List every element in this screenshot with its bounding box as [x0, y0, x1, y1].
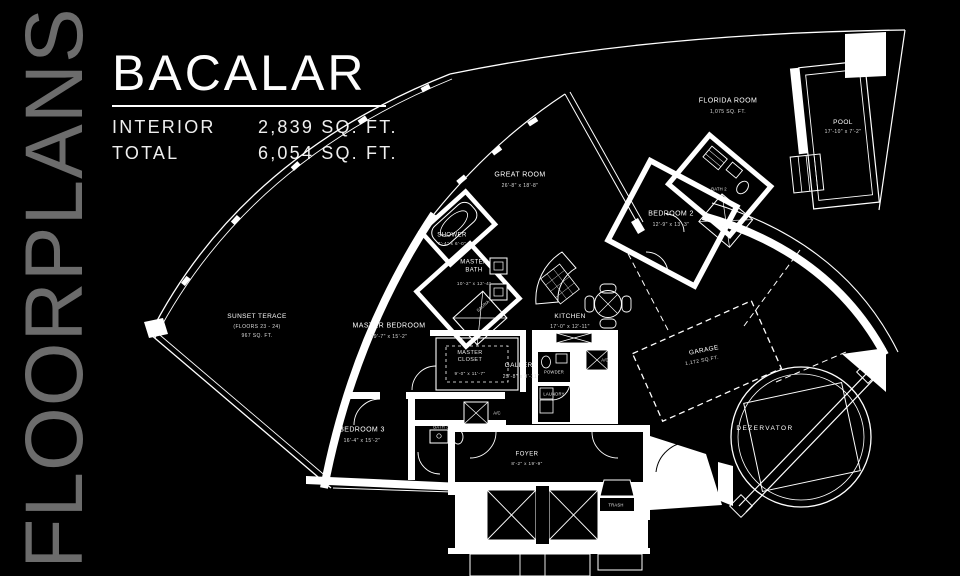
- great-room-glass: [434, 92, 645, 234]
- room-dims-master-bedroom: 19'-7" x 15'-2": [371, 334, 408, 340]
- room-dims-gallery: 25'-8" x 9'-11": [503, 374, 539, 380]
- terrace-outline: [144, 30, 905, 492]
- room-label-foyer: FOYER: [516, 451, 539, 459]
- dining-table: [585, 284, 631, 328]
- room-area-sunset-terrace: 967 SQ. FT.: [241, 333, 272, 339]
- room-label-sunset-terrace: SUNSET TERACE: [227, 313, 287, 321]
- wall-block-top-right: [845, 32, 886, 78]
- room-dims-pool: 17'-10" x 7'-2": [825, 129, 862, 135]
- room-dims-kitchen: 17'-0" x 12'-11": [550, 324, 590, 330]
- room-floors-sunset-terrace: (FLOORS 23 - 24): [233, 324, 280, 330]
- room-label-pool: POOL: [833, 119, 853, 127]
- room-label-master-bedroom: MASTER BEDROOM: [353, 323, 426, 332]
- room-dims-bedroom-3: 16'-4" x 15'-2": [344, 438, 381, 444]
- room-dims-shower: 7'-4" x 6'-0": [438, 241, 466, 247]
- room-label-bedroom-3: BEDROOM 3: [339, 427, 385, 436]
- room-dims-master-closet: 9'-0" x 11'-7": [455, 371, 486, 377]
- floorplan-drawing: [0, 0, 960, 576]
- room-dims-great-room: 26'-8" x 18'-8": [502, 183, 539, 189]
- floorplan-page: FLOORPLANS BACALAR INTERIOR 2,839 SQ. FT…: [0, 0, 960, 576]
- room-label-master-closet: MASTER CLOSET: [451, 350, 489, 364]
- room-label-ac-2: A/C: [493, 410, 501, 415]
- powder-room: [538, 352, 570, 382]
- trash-chute: [600, 480, 634, 496]
- elevator-core: [448, 425, 722, 576]
- room-dims-foyer: 8'-2" x 19'-9": [511, 461, 542, 467]
- room-dims-bedroom-2: 12'-9" x 13'-3": [653, 222, 690, 228]
- room-label-ac-1: A/C: [601, 357, 609, 362]
- room-label-bath-3: BATH 3: [433, 424, 449, 429]
- service-band: [532, 330, 618, 424]
- terrace-interior-wall: [324, 214, 434, 488]
- room-label-laundry: LAUNDRY: [543, 391, 564, 396]
- room-label-bath-2: BATH 2: [711, 186, 727, 191]
- room-label-master-bath: MASTER BATH: [455, 260, 493, 275]
- right-curved-wall: [703, 203, 898, 355]
- kitchen-island: [536, 252, 579, 304]
- room-label-powder: POWDER: [544, 369, 564, 374]
- room-dims-master-bath: 10'-2" x 12'-4": [457, 281, 491, 287]
- room-area-florida-room: 1,075 SQ. FT.: [710, 109, 746, 115]
- room-label-gallery: GALLERY: [505, 362, 538, 370]
- room-label-kitchen: KITCHEN: [554, 313, 585, 321]
- room-label-dezervator: DEZERVATOR: [736, 425, 793, 433]
- room-label-florida-room: FLORIDA ROOM: [699, 98, 757, 107]
- room-label-shower: SHOWER: [437, 232, 466, 240]
- pool-outline: [781, 61, 879, 211]
- room-label-trash: TRASH: [608, 502, 623, 507]
- room-label-bedroom-2: BEDROOM 2: [648, 211, 694, 220]
- room-label-great-room: GREAT ROOM: [494, 172, 545, 181]
